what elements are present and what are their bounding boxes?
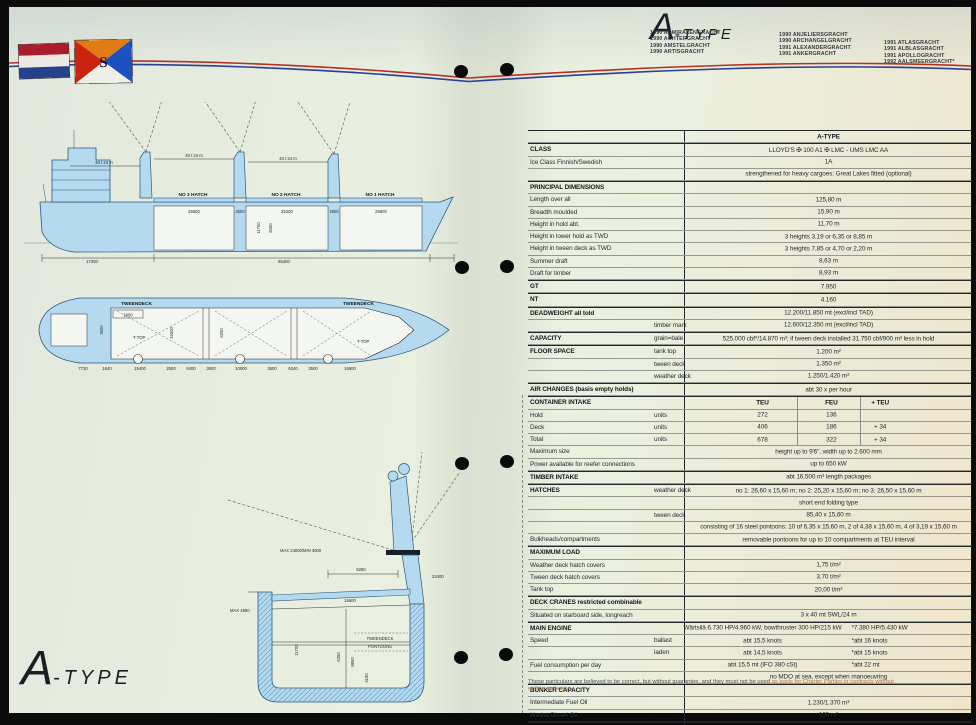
spec-row: Weather deck hatch covers1,75 t/m² [528,560,972,572]
deck-plan-drawing: TWEENDECK TWEENDECK T-TOP T-TOP 1900 360… [25,282,455,388]
plan-dimension: 15400 [134,366,146,371]
spec-value: 1.250/1.420 m² [685,373,972,380]
spec-label: CONTAINER INTAKE [528,399,654,406]
spec-column-value: 322 [826,436,836,443]
binder-hole [455,457,469,470]
spec-label: Intermediate Fuel Oil [528,699,654,706]
spec-value: 3 heights 7,85 or 4,70 or 2,20 m [685,245,972,252]
plan-dimension: 6400 [186,366,196,371]
spec-value-cell: 7.950 [684,281,972,292]
hatch-dimension: 26500 [188,209,200,214]
spec-column-value: + TEU [871,399,889,406]
spec-sublabel: grain=bale [654,335,684,342]
spec-row: MAIN ENGINEWärtsilä 6.730 HP/4.960 kW, b… [528,622,972,635]
spec-label: Tween deck hatch covers [528,574,654,581]
spec-row: consisting of 16 steel pontoons: 10 of 6… [528,522,972,534]
spec-value: 3 x 40 mt SWL/24 m [685,612,972,619]
spec-row: MAXIMUM LOAD [528,546,972,559]
spec-column-value: 406 [757,424,767,431]
spec-value-cell: 1A [684,157,972,168]
spec-value: Wärtsilä 6.730 HP/4.960 kW, bowthruster … [683,625,841,632]
plan-dimension: 2500 [166,366,176,371]
spec-column-value: FEU [825,399,837,406]
binder-hole [455,261,469,274]
spec-value-cell: 105 m³ [684,710,972,721]
specification-table: A-TYPECLASSLLOYD'S ✠ 100 A1 ✠ LMC - UMS … [528,130,972,725]
page-fold-line [522,395,523,713]
spec-row: Intermediate Fuel Oil1.230/1.370 m³ [528,697,972,709]
spec-row: Height in tween deck as TWD3 heights 7,8… [528,243,972,255]
spec-row: Deckunits406186+ 34 [528,422,972,434]
spec-value-cell: consisting of 16 steel pontoons: 10 of 6… [684,522,972,533]
spec-value: abt 14,5 knots [743,649,782,656]
binder-hole [500,455,514,468]
spec-value-cell: removable pontoons for up to 10 compartm… [684,534,972,545]
spec-row: strengthened for heavy cargoes; Great La… [528,169,972,181]
blue-brand-line [9,64,971,81]
hold-depth-dimension: 8450 [268,223,273,233]
spec-sublabel: units [654,412,684,419]
section-dimension: 23400 [432,574,444,579]
spec-label: MAXIMUM LOAD [528,549,654,556]
disclaimer-footnote: These particulars are believed to be cor… [528,679,973,693]
plan-dimension: 7730 [78,366,88,371]
spec-label: DEADWEIGHT all told [528,310,654,317]
spec-value: 1A [685,159,972,166]
spec-value-cell [684,597,972,608]
spec-value: LLOYD'S ✠ 100 A1 ✠ LMC - UMS LMC AA [685,146,972,154]
spec-row: PRINCIPAL DIMENSIONS [528,181,972,194]
logo-suffix: -TYPE [53,667,132,690]
spec-label: Hold [528,412,654,419]
spec-label: TIMBER INTAKE [528,474,654,481]
spec-value-cell: abt 30 x per hour [684,384,972,395]
hatch-coamings [154,198,422,202]
spec-value-alt: *abt 22 mt [851,662,879,669]
spec-value: 1.230/1.370 m³ [685,699,972,706]
spec-row: Breadth moulded15,90 m [528,207,972,219]
spec-label: Maximum size [528,448,654,455]
spec-value-cell: 1,75 t/m² [684,560,972,571]
tweendeck-pontoons-label: PONTOONS [368,644,392,649]
spec-value: 20,00 t/m² [685,586,972,593]
overall-hatch-dimension: 85400 [278,259,290,264]
spec-sublabel: weather deck [654,373,684,380]
hatch-gap-dimension: 2500 [329,209,339,214]
spec-value-cell: 406186+ 34 [684,422,972,433]
spec-value-cell: A-TYPE [684,131,972,142]
spec-value: 12.200/11.850 mt (excl/incl TAD) [685,310,972,317]
spec-label: Marine Diesel Oil [528,712,654,719]
spec-sublabel: tween deck [654,512,684,519]
spec-row: Length over all125,80 m [528,194,972,206]
crane-rigging-lines [108,102,350,154]
binder-hole [500,63,514,76]
spec-label: Ice Class Finnish/Swedish [528,159,654,166]
spec-value: 1.200 m² [685,348,972,355]
spec-value: 525.000 cbf*/14.870 m³; if tween deck in… [685,335,972,342]
spec-value-cell: 4.160 [684,294,972,305]
spec-row: Situated on starboard side, longreach3 x… [528,610,972,622]
spec-value-cell: abt 16.500 m³ length packages [684,472,972,483]
spec-row: Marine Diesel Oil105 m³ [528,710,972,722]
spec-label: CAPACITY [528,335,654,342]
section-dimension: 6350 [336,652,341,662]
spec-row: TIMBER INTAKEabt 16.500 m³ length packag… [528,471,972,484]
spec-value-cell: 525.000 cbf*/14.870 m³; if tween deck in… [684,333,972,344]
crane-capacity-label: 40 t 24 m [185,153,203,158]
spec-sublabel: laden [654,649,684,656]
spec-value-cell: 1.230/1.370 m³ [684,697,972,708]
spec-label: Height in tween deck as TWD [528,245,654,252]
footnote-text: These particulars are believed to be cor… [528,679,770,685]
plan-dimension: 3500 [308,366,318,371]
spec-label: Summer draft [528,258,654,265]
footnote-line-2: written authority. [528,686,973,693]
spec-column-value: 678 [757,436,767,443]
plan-dimension: 3600 [99,325,104,335]
footnote-line-1: These particulars are believed to be cor… [528,679,973,686]
spec-row: FLOOR SPACEtank top1.200 m² [528,345,972,358]
spec-sublabel: tween deck [654,361,684,368]
spec-label: Deck [528,424,654,431]
fleet-ship-entry: 1990 ARTISGRACHT [650,49,721,55]
hatch-cover-section [272,589,410,601]
hatch-3-label: NO 3 HATCH [179,192,208,198]
spec-row: Holdunits272136 [528,410,972,422]
spec-label: Fuel consumption per day [528,662,654,669]
spec-label: Situated on starboard side, longreach [528,612,654,619]
ship-side-profile-drawing: 40 t 24 m 40 t 24 m 40 t 24 m NO 3 HATCH… [12,102,460,284]
spec-row: NT4.160 [528,293,972,306]
spec-label: GT [528,283,654,290]
spec-value-cell: 8,93 m [684,268,972,279]
spec-row: Speedballastabt 15,5 knots*abt 16 knots [528,635,972,647]
spec-value: up to 650 kW [685,461,972,468]
spec-value-cell: strengthened for heavy cargoes; Great La… [684,169,972,180]
spec-row: CONTAINER INTAKETEUFEU+ TEU [528,396,972,409]
spec-value: 105 m³ [685,712,972,719]
spec-value-cell: 15,90 m [684,207,972,218]
spec-column-value: 136 [826,412,836,419]
spec-value: 3 heights 3,19 or 6,35 or 8,85 m [685,233,972,240]
tweendeck-label: TWEENDECK [343,301,374,307]
spec-value-cell [684,547,972,558]
spec-sublabel: units [654,424,684,431]
spec-label: Tank top [528,586,654,593]
spec-sublabel: units [654,436,684,443]
spec-value-cell: 20,00 t/m² [684,584,972,595]
spec-label: NT [528,296,654,303]
plan-dimension: 16800 [344,366,356,371]
spec-sublabel: weather deck [654,487,684,494]
binder-hole [499,648,513,661]
spec-row: CLASSLLOYD'S ✠ 100 A1 ✠ LMC - UMS LMC AA [528,143,972,156]
page-footer-title: A-TYPE [21,641,132,696]
spec-label: Weather deck hatch covers [528,562,654,569]
spec-value-alt: *abt 15 knots [851,649,887,656]
plan-dimension: 1900 [123,313,133,318]
tanktop-label: T-TOP [357,339,369,344]
spec-value-cell: up to 650 kW [684,459,972,470]
fleet-ship-entry: 1991 ANKERGRACHT [779,51,852,57]
spec-label: Length over all [528,196,654,203]
spec-row: tween deck85,40 x 15,60 m [528,510,972,522]
spec-row: ladenabt 14,5 knots*abt 15 knots [528,647,972,659]
spec-value: 4.160 [685,296,972,303]
spec-value-cell: LLOYD'S ✠ 100 A1 ✠ LMC - UMS LMC AA [684,144,972,155]
beam-dimension: 15600 [169,327,174,339]
plan-dimension-chain: 7730164015400250064003600100003600634035… [78,366,356,371]
spec-column-value: + 34 [874,424,886,431]
spec-value: short end folding type [685,499,972,506]
plan-dimension: 3600 [267,366,277,371]
spec-row: weather deck1.250/1.420 m² [528,371,972,383]
spec-row: Maximum sizeheight up to 9'6'', width up… [528,446,972,458]
house-flag-letter: S [99,55,108,71]
plan-dimension: 10000 [235,366,247,371]
spec-value-cell: 1.200 m² [684,346,972,357]
spec-label: PRINCIPAL DIMENSIONS [528,184,654,191]
spec-label: FLOOR SPACE [528,348,654,355]
fleet-ship-entry: 1992 AALSMEERGRACHT* [884,59,955,65]
spec-value-cell: 11,70 m [684,219,972,230]
netherlands-flag [18,43,69,79]
spec-value-cell: 678322+ 34 [684,434,972,445]
spec-row: Totalunits678322+ 34 [528,434,972,446]
hatch-dimension: 25200 [281,209,293,214]
spec-value-cell [684,182,972,193]
spec-row: DECK CRANES restricted combinable [528,596,972,609]
spec-label: HATCHES [528,487,654,494]
spec-row: Bulkheads/compartmentsremovable pontoons… [528,534,972,546]
spec-value: abt 30 x per hour [685,386,972,393]
spec-row: HATCHESweather deckno 1: 26,60 x 15,60 m… [528,484,972,497]
section-dimension: 8850 [350,657,355,667]
spec-value: strengthened for heavy cargoes; Great La… [685,171,972,178]
spec-row: Height in hold abt.11,70 m [528,219,972,231]
spec-value-alt: *abt 16 knots [851,637,887,644]
spec-row: Tank top20,00 t/m² [528,584,972,596]
spec-value: 12.600/12.350 mt (excl/incl TAD) [685,322,972,329]
spec-row: Ice Class Finnish/Swedish1A [528,157,972,169]
spec-value-cell: no 1: 26,60 x 15,60 m; no 2: 25,20 x 15,… [684,485,972,496]
spec-row: Fuel consumption per dayabt 15,5 mt (IFO… [528,660,972,672]
cross-section-drawing: MAX 24000/MIN 3600 6250 23400 15600 TWEE… [228,452,468,714]
fleet-list-column-2: 1990 ANJELIERSGRACHT1990 ARCHANGELGRACHT… [779,32,852,58]
spec-row: A-TYPE [528,130,972,143]
spec-row: timber mark12.600/12.350 mt (excl/incl T… [528,320,972,332]
fleet-list-column-1: 1990 ADMIRALENGRACHT1990 ACHTERGRACHT199… [650,30,721,56]
binder-hole [454,651,468,664]
spec-label: Height in hold abt. [528,221,654,228]
fleet-ship-entry: 1990 ACHTERGRACHT [650,36,721,42]
spec-row: tween deck1.350 m² [528,359,972,371]
paper-spread: S A-TYPE 1990 ADMIRALENGRACHT1990 ACHTER… [9,7,971,713]
spec-value: abt 16.500 m³ length packages [685,474,972,481]
spec-value: abt 15,5 knots [743,637,782,644]
beam-dimension: 15600 [344,598,356,603]
spec-row: AIR CHANGES (basis empty holds)abt 30 x … [528,383,972,396]
cargo-hatch-area [111,308,414,359]
fleet-ship-entry: 1990 ARCHANGELGRACHT [779,38,852,44]
spec-value: consisting of 16 steel pontoons: 10 of 6… [685,524,972,531]
stern-house [51,314,87,346]
spec-value: height up to 9'6'', width up to 2.600 mm [685,448,972,455]
plan-dimension: 6250 [219,328,224,338]
spec-row: DEADWEIGHT all told12.200/11.850 mt (exc… [528,307,972,320]
spec-value-cell: short end folding type [684,497,972,508]
spec-value: 8,93 m [685,270,972,277]
fleet-list-column-3: 1991 ATLASGRACHT1991 ALBLASGRACHT1991 AP… [884,40,955,66]
section-dimension: 11700 [294,644,299,656]
spec-sublabel: tank top [654,348,684,355]
spec-value-cell: abt 15,5 knots*abt 16 knots [684,635,972,646]
spec-value-cell: TEUFEU+ TEU [684,397,972,408]
spec-value-alt: *7.380 HP/5.430 kW [851,625,907,632]
spec-value: 8,63 m [685,258,972,265]
spec-value-cell: 1.350 m² [684,359,972,370]
binder-hole [454,65,468,78]
spec-value: 1.350 m² [685,361,972,368]
spec-value: abt 15,5 mt (IFO 380 cSt) [728,662,798,669]
superstructure [52,148,110,202]
spec-value-cell: 3 heights 7,85 or 4,70 or 2,20 m [684,243,972,254]
spec-label: Breadth moulded [528,209,654,216]
spec-value-cell: 272136 [684,410,972,421]
spec-value: 3,70 t/m² [685,574,972,581]
section-dimension: 3190 [364,673,369,683]
spec-value-cell: 1.250/1.420 m² [684,371,972,382]
plan-dimension: 6340 [288,366,298,371]
hatch-gap-dimension: 2500 [235,209,245,214]
spec-value-cell: 12.600/12.350 mt (excl/incl TAD) [684,320,972,331]
crane-capacity-label: 40 t 24 m [95,160,113,165]
spec-column-value: 186 [826,424,836,431]
crane-reach-label: MAX 24000/MIN 3600 [280,548,322,553]
spec-row: Draft for timber8,93 m [528,268,972,280]
footnote-text-orange: as basis for Charter Parties or contract… [770,679,894,685]
plan-dimension: 1640 [102,366,112,371]
section-crane [386,464,424,605]
spec-value-cell: 85,40 x 15,60 m [684,510,972,521]
spec-label: DECK CRANES restricted combinable [528,599,654,606]
spec-value-cell: 8,63 m [684,256,972,267]
spec-value-cell: 125,80 m [684,194,972,205]
spec-row: GT7.950 [528,280,972,293]
crane-boom-range-lines [228,452,460,554]
spec-value-cell: abt 15,5 mt (IFO 380 cSt)*abt 22 mt [684,660,972,671]
spec-value: 7.950 [685,283,972,290]
spec-label: Bulkheads/compartments [528,536,654,543]
tweendeck-label: TWEENDECK [121,301,152,307]
spec-value-cell: height up to 9'6'', width up to 2.600 mm [684,446,972,457]
spec-value: no 1: 26,60 x 15,60 m; no 2: 25,20 x 15,… [685,487,972,494]
spec-sublabel: ballast [654,637,684,644]
spec-label: Speed [528,637,654,644]
spec-label: Total [528,436,654,443]
spec-sublabel: timber mark [654,322,684,329]
spliethoff-house-flag: S [75,40,133,84]
hatch-dimension: 26600 [375,209,387,214]
max-draft-label: MAX 4950 [230,608,250,613]
spec-label: Draft for timber [528,270,654,277]
section-dimension: 6250 [356,567,366,572]
spec-label: MAIN ENGINE [528,625,654,632]
spec-value: removable pontoons for up to 10 compartm… [685,536,972,543]
spec-label: CLASS [528,146,654,153]
spec-label: AIR CHANGES (basis empty holds) [528,386,654,393]
binder-hole [500,260,514,273]
spec-value-cell: 3 heights 3,19 or 6,35 or 8,85 m [684,231,972,242]
spec-label: Height in lower hold as TWD [528,233,654,240]
plan-dimension: 3600 [206,366,216,371]
spec-value: 125,80 m [685,196,972,203]
red-brand-line [9,61,971,78]
tanktop-label: T-TOP [133,335,145,340]
nl-blue-stripe [19,66,69,79]
spec-value: 11,70 m [685,221,972,228]
crane-capacity-label: 40 t 24 m [279,156,297,161]
scanned-brochure-page: S A-TYPE 1990 ADMIRALENGRACHT1990 ACHTER… [0,0,976,725]
spec-value: A-TYPE [685,133,972,140]
logo-letter-a: A [21,641,53,696]
spec-column-value: TEU [756,399,768,406]
hatch-1-label: NO 1 HATCH [366,192,395,198]
spec-value: 15,90 m [685,209,972,216]
spec-value-cell: 3 x 40 mt SWL/24 m [684,610,972,621]
spec-row: Tween deck hatch covers3,70 t/m² [528,572,972,584]
spec-row: Summer draft8,63 m [528,256,972,268]
spec-column-value: 272 [757,412,767,419]
spec-value-cell: 12.200/11.850 mt (excl/incl TAD) [684,308,972,319]
spec-row: Power available for reefer connectionsup… [528,459,972,471]
stern-dimension: 17200 [86,259,98,264]
spec-value-cell: Wärtsilä 6.730 HP/4.960 kW, bowthruster … [684,623,972,634]
spec-value: 1,75 t/m² [685,562,972,569]
spec-label: Power available for reefer connections [528,461,654,468]
spec-value-cell: abt 14,5 knots*abt 15 knots [684,647,972,658]
spec-value-cell: 3,70 t/m² [684,572,972,583]
spec-row: Height in lower hold as TWD3 heights 3,1… [528,231,972,243]
spec-value: 85,40 x 15,60 m [685,512,972,519]
hatch-2-label: NO 2 HATCH [272,192,301,198]
hold-depth-dimension: 11700 [256,222,261,234]
tweendeck-pontoons-label: TWEENDECK [367,636,394,641]
spec-column-value: + 34 [874,436,886,443]
spec-row: CAPACITYgrain=bale525.000 cbf*/14.870 m³… [528,332,972,345]
spec-row: short end folding type [528,497,972,509]
